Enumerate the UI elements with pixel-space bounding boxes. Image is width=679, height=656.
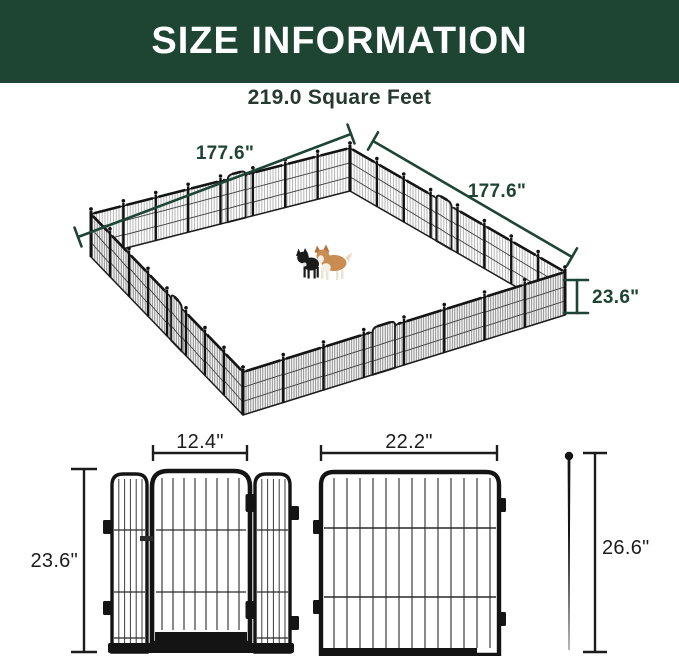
door-latch <box>140 536 153 541</box>
connector-tab <box>290 506 299 520</box>
page-title: SIZE INFORMATION <box>151 20 527 63</box>
connector-tab <box>103 520 112 534</box>
door-base-bar <box>108 643 294 653</box>
connector-tab <box>497 612 506 626</box>
corgi-illustration <box>315 245 353 281</box>
stake-spike <box>568 460 571 650</box>
dimension-label-door-height: 23.6" <box>30 550 78 572</box>
door-side-panel-right <box>255 474 299 652</box>
stake-head <box>565 452 573 460</box>
dimension-label-back-right: 177.6" <box>468 181 526 202</box>
connector-tab <box>103 601 112 615</box>
dimension-label-back-left: 177.6" <box>196 143 254 164</box>
wide-panel-frame <box>321 472 499 655</box>
pen-wall <box>241 265 567 415</box>
door-side-panel-left <box>103 474 147 652</box>
door-panel-diagram: 12.4" 23.6" <box>30 431 299 653</box>
dimension-pen-height <box>564 280 588 313</box>
door-hinge <box>246 494 255 512</box>
connector-tab <box>313 600 322 614</box>
door-gate <box>140 471 255 643</box>
connector-tab <box>290 616 299 630</box>
dimension-label-panel-width: 22.2" <box>385 431 433 453</box>
wide-panel-diagram: 22.2" <box>313 431 506 655</box>
dimension-label-pen-height: 23.6" <box>592 287 640 308</box>
size-diagram-canvas: 177.6" 177.6" 23.6" 12.4" <box>0 110 679 656</box>
header-banner: SIZE INFORMATION <box>0 0 679 83</box>
dimension-label-door-width: 12.4" <box>176 431 224 453</box>
area-subtitle: 219.0 Square Feet <box>0 86 679 110</box>
door-hinge <box>246 601 255 619</box>
connector-tab <box>313 520 322 534</box>
connector-tab <box>497 498 506 512</box>
dimension-label-stake-height: 26.6" <box>602 537 650 559</box>
ground-stake-diagram: 26.6" <box>565 452 650 652</box>
size-information-infographic: SIZE INFORMATION 219.0 Square Feet <box>0 0 679 656</box>
playpen-isometric: 177.6" 177.6" 23.6" <box>75 125 640 415</box>
